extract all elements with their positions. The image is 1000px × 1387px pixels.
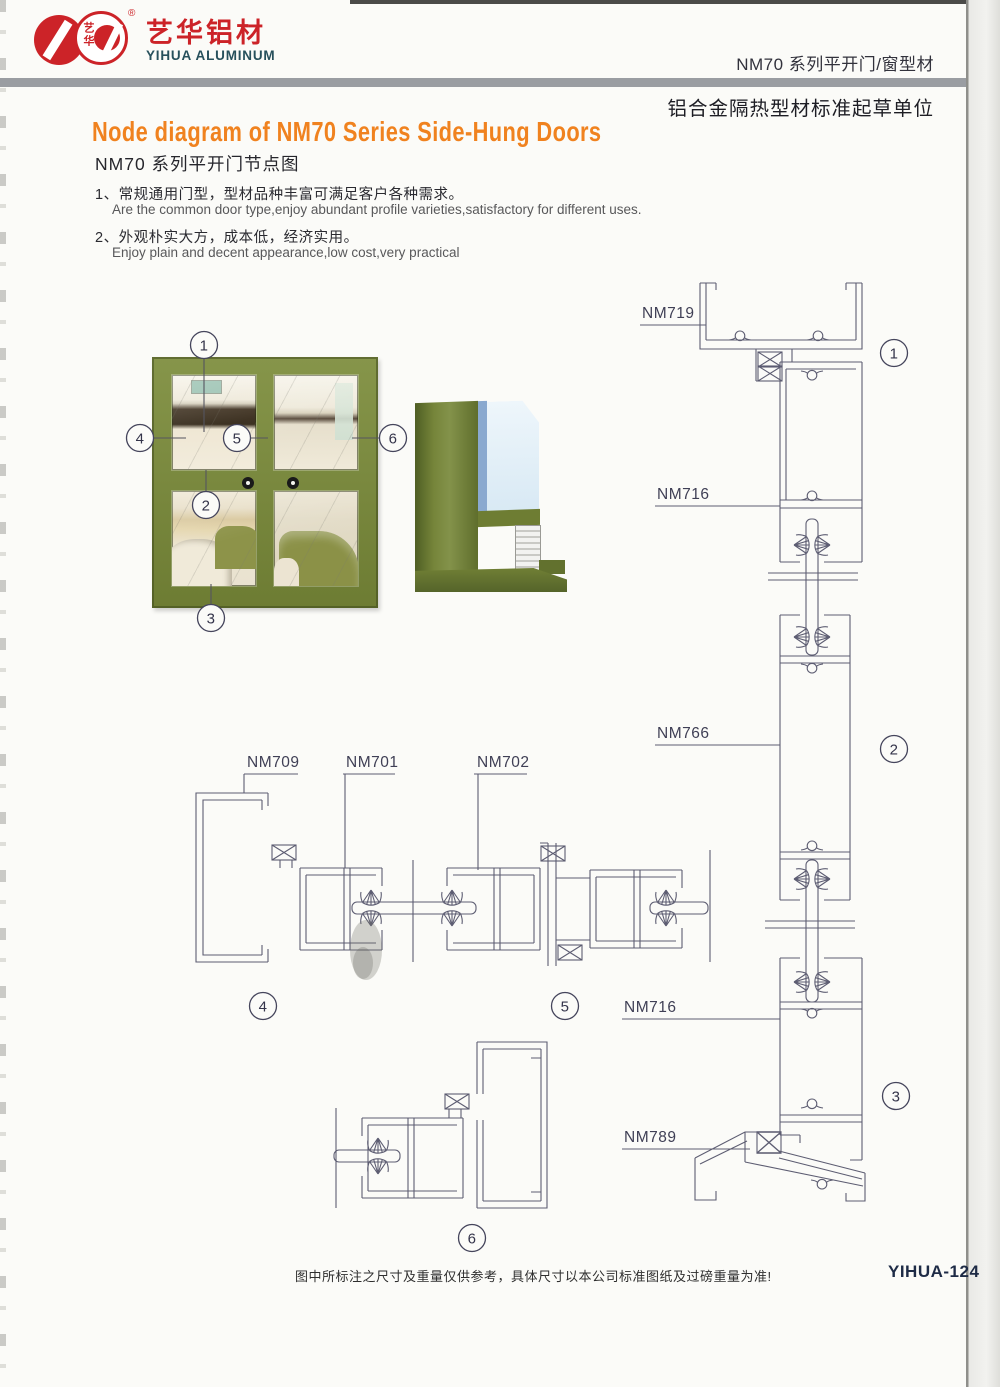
door-photo: [152, 357, 378, 608]
mullion-drawing: [780, 615, 850, 900]
leader-nm701: [343, 774, 395, 868]
label-nm789: NM789: [624, 1129, 676, 1146]
section-circle-5: [552, 993, 579, 1020]
section-number-5: 5: [561, 999, 570, 1016]
photo-callout-circle-4: [127, 425, 154, 452]
render-glass-edge: [478, 401, 487, 513]
scan-smudge-2: [353, 947, 373, 979]
logo-seal-text: 艺华: [80, 22, 96, 62]
label-nm716-upper: NM716: [657, 486, 709, 503]
glass-strip-1: [806, 519, 818, 655]
catalog-page: 艺华 ® 艺华铝材 YIHUA ALUMINUM NM70 系列平开门/窗型材 …: [0, 0, 1000, 1387]
stile-4-drawing: [300, 868, 382, 950]
glass-pane-4: [352, 902, 476, 914]
jamb-right-drawing: [336, 1042, 547, 1208]
render-green-frame: [415, 401, 478, 577]
section-circle-2: [881, 736, 908, 763]
scan-edge-right: [966, 0, 1000, 1387]
page-title-en: Node diagram of NM70 Series Side-Hung Do…: [92, 116, 601, 148]
footer-disclaimer: 图中所标注之尺寸及重量仅供参考，具体尺寸以本公司标准图纸及过磅重量为准!: [295, 1266, 772, 1285]
glass-pane-upper-left: [172, 375, 256, 470]
section-number-2: 2: [890, 742, 899, 759]
glass-pane-lower-right: [274, 491, 358, 586]
photo-green-sofa: [279, 531, 358, 586]
leader-nm702: [474, 774, 527, 870]
section-circle-4: [250, 993, 277, 1020]
page-title-cn: NM70 系列平开门节点图: [95, 151, 300, 176]
header-divider-bar: [0, 78, 966, 87]
glass-pane-upper-right: [274, 375, 358, 470]
label-nm719: NM719: [642, 305, 694, 322]
header-series-title: NM70 系列平开门/窗型材: [736, 50, 934, 75]
glass-pane-lower-left: [172, 491, 256, 586]
brand-text: 艺华铝材 YIHUA ALUMINUM: [146, 8, 275, 70]
section-number-1: 1: [890, 346, 899, 363]
sill-drawing: [695, 1132, 865, 1201]
door-handle-left: [242, 477, 254, 489]
photo-window-strip: [335, 383, 353, 440]
jamb-left-drawing: [196, 793, 296, 962]
photo-callout-1: 1: [200, 338, 209, 355]
scan-edge-top: [350, 0, 966, 4]
photo-callout-6: 6: [389, 431, 398, 448]
profile-corner-render: [415, 392, 580, 600]
glass-cut-line-2: [765, 921, 855, 928]
section-number-3: 3: [892, 1089, 901, 1106]
photo-skylight: [192, 381, 221, 393]
feature-1-en: Are the common door type,enjoy abundant …: [112, 202, 642, 217]
label-nm701: NM701: [346, 754, 398, 771]
feature-2-cn: 2、外观朴实大方，成本低，经济实用。: [95, 226, 359, 247]
scan-edge-left: [0, 0, 6, 1387]
section-circle-6: [459, 1225, 486, 1252]
feature-1-cn: 1、常规通用门型，型材品种丰富可满足客户各种需求。: [95, 183, 464, 204]
stile-upper-drawing: [780, 362, 862, 562]
feature-2-en: Enjoy plain and decent appearance,low co…: [112, 245, 459, 260]
registered-mark: ®: [128, 8, 135, 19]
photo-callout-circle-3: [198, 605, 225, 632]
brand-name-cn: 艺华铝材: [146, 19, 275, 47]
stile-lower-drawing: [780, 958, 862, 1160]
render-glass-pane: [487, 400, 539, 514]
footer-page-number: YIHUA-124: [888, 1262, 979, 1282]
photo-callout-4: 4: [136, 431, 145, 448]
header-cert-line: 铝合金隔热型材标准起草单位: [667, 92, 934, 121]
photo-callout-circle-6: [380, 425, 407, 452]
photo-white-sofa: [172, 539, 232, 586]
brand-logo: 艺华 ® 艺华铝材 YIHUA ALUMINUM: [34, 8, 275, 70]
section-circle-1: [881, 340, 908, 367]
leader-nm709: [244, 774, 298, 793]
photo-sofa-arm: [274, 558, 299, 587]
glass-pane-6: [334, 1150, 400, 1162]
head-frame-drawing: [700, 283, 862, 381]
glass-pane-5: [650, 902, 708, 914]
stile-5-drawing: [442, 843, 682, 966]
photo-green-cushion: [215, 526, 256, 569]
section-number-6: 6: [468, 1231, 477, 1248]
brand-name-en: YIHUA ALUMINUM: [146, 48, 275, 63]
section-circle-3: [883, 1083, 910, 1110]
photo-callout-3: 3: [207, 611, 216, 628]
label-nm709: NM709: [247, 754, 299, 771]
glass-strip-2: [806, 860, 818, 1002]
render-thermal-break: [515, 525, 541, 575]
label-nm702: NM702: [477, 754, 529, 771]
brand-logo-icon: 艺华 ®: [34, 8, 138, 70]
label-nm766: NM766: [657, 725, 709, 742]
label-nm716-lower: NM716: [624, 999, 676, 1016]
scan-smudge: [350, 920, 382, 980]
glass-cut-line-1: [768, 573, 858, 580]
door-handle-right: [287, 477, 299, 489]
photo-callout-circle-1: [191, 332, 218, 359]
section-number-4: 4: [259, 999, 268, 1016]
